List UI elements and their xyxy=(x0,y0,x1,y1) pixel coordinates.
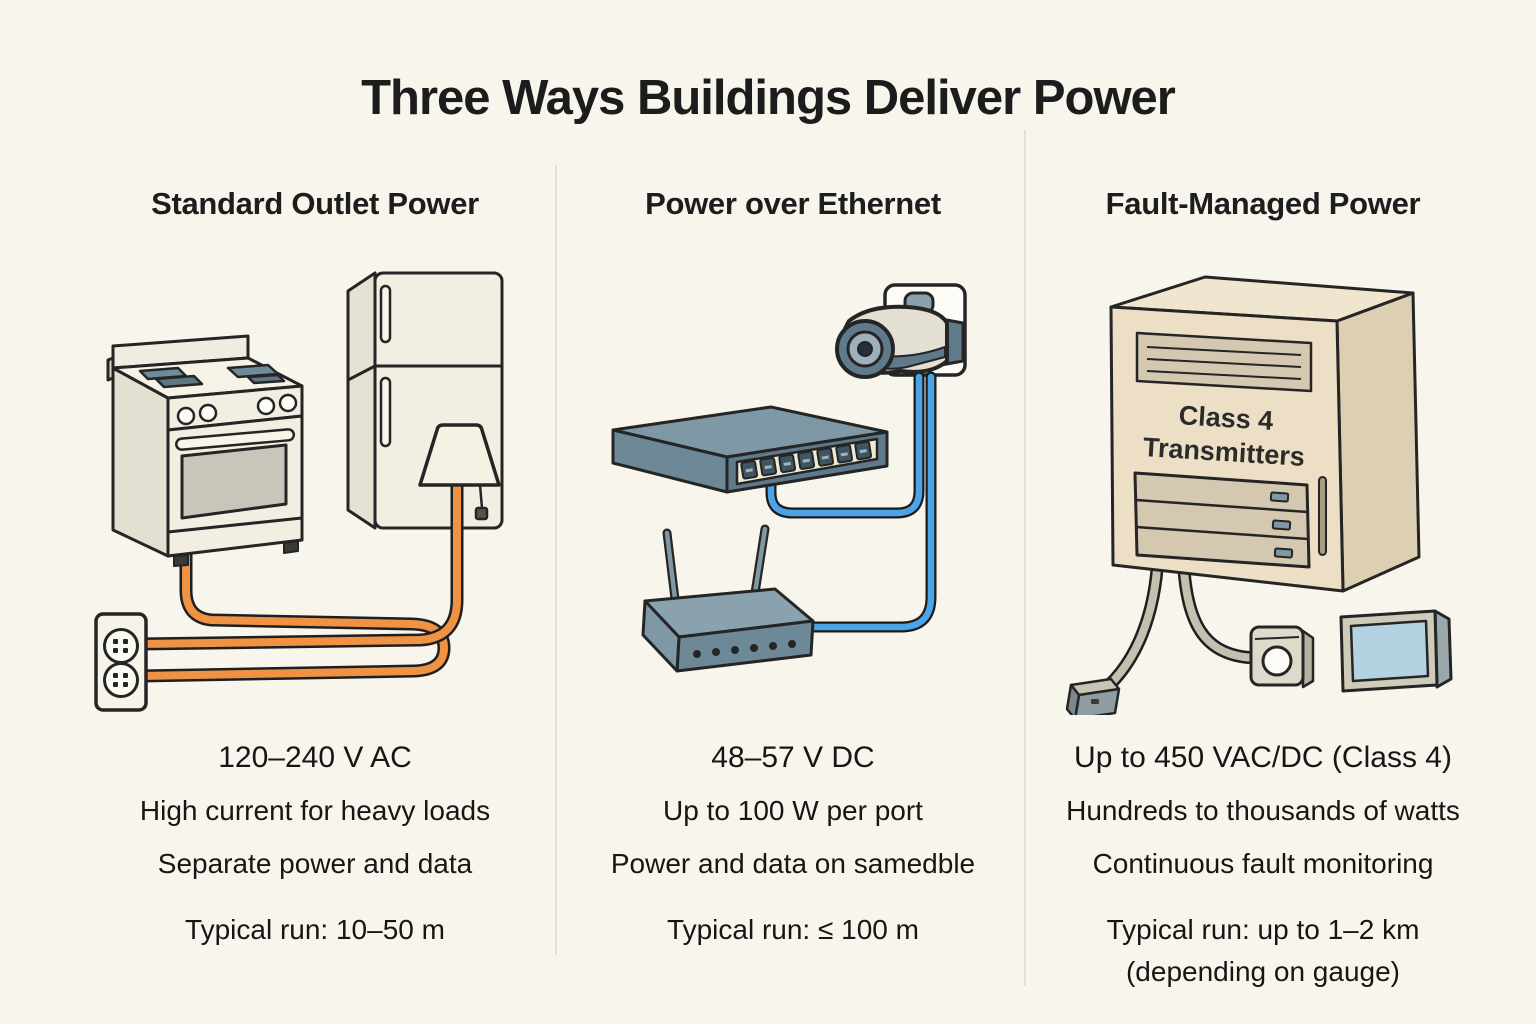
column-header-standard-outlet: Standard Outlet Power xyxy=(65,186,565,222)
stat-detail: Continuous fault monitoring xyxy=(1030,847,1496,881)
router-antenna xyxy=(667,529,765,599)
stats-standard-outlet: 120–240 V AC High current for heavy load… xyxy=(65,740,565,951)
stat-voltage: Up to 450 VAC/DC (Class 4) xyxy=(1030,740,1496,776)
cabinet-handle xyxy=(1319,477,1326,555)
vent-grille xyxy=(1137,333,1311,391)
stat-typical-run-line1: Typical run: up to 1–2 km xyxy=(1030,909,1496,951)
wall-controller-icon xyxy=(1251,627,1313,687)
stat-typical-run: Typical run: up to 1–2 km (depending on … xyxy=(1030,909,1496,993)
stats-poe: 48–57 V DC Up to 100 W per port Power an… xyxy=(568,740,1018,951)
power-cable-to-plug xyxy=(1095,555,1158,697)
cabinet-label-line1: Class 4 xyxy=(1178,400,1274,436)
outlet-icon xyxy=(96,614,146,710)
column-header-fault-managed: Fault-Managed Power xyxy=(1030,186,1496,222)
page-title: Three Ways Buildings Deliver Power xyxy=(0,70,1536,126)
display-monitor-icon xyxy=(1341,611,1451,691)
stat-voltage: 48–57 V DC xyxy=(568,740,1018,776)
wifi-router-icon xyxy=(643,529,813,671)
stats-fault-managed: Up to 450 VAC/DC (Class 4) Hundreds to t… xyxy=(1030,740,1496,993)
plug-icon xyxy=(1067,679,1119,715)
stat-detail: Hundreds to thousands of watts xyxy=(1030,794,1496,828)
stat-detail: Power and data on samedble xyxy=(568,847,1018,881)
infographic-canvas: Three Ways Buildings Deliver Power Stand… xyxy=(0,0,1536,1024)
transmitter-cabinet-icon: Class 4 Transmitters xyxy=(1111,277,1419,591)
stove-icon xyxy=(108,336,302,566)
stat-typical-run: Typical run: 10–50 m xyxy=(65,909,565,951)
stat-detail: Up to 100 W per port xyxy=(568,794,1018,828)
refrigerator-icon xyxy=(348,273,502,528)
stat-detail: Separate power and data xyxy=(65,847,565,881)
standard-outlet-illustration xyxy=(80,258,540,720)
poe-illustration xyxy=(575,265,1005,695)
fault-managed-illustration: Class 4 Transmitters xyxy=(1055,265,1505,715)
column-header-poe: Power over Ethernet xyxy=(568,186,1018,222)
column-divider-right xyxy=(1024,130,1026,986)
stat-typical-run-line2: (depending on gauge) xyxy=(1030,951,1496,993)
rack-units xyxy=(1135,473,1309,567)
stat-typical-run: Typical run: ≤ 100 m xyxy=(568,909,1018,951)
stat-detail: High current for heavy loads xyxy=(65,794,565,828)
network-switch-icon xyxy=(613,407,887,492)
power-cord-stove xyxy=(140,548,444,676)
stat-voltage: 120–240 V AC xyxy=(65,740,565,776)
